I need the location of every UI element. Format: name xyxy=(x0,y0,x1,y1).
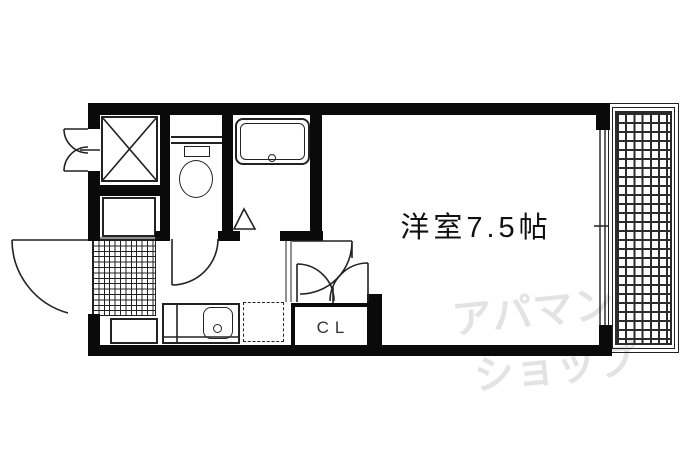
floorplan-canvas: アパマン ショップ CL xyxy=(0,0,690,460)
toilet-door xyxy=(172,239,218,285)
bath-folding-door xyxy=(234,209,255,229)
hall-threshold-lines xyxy=(286,240,291,302)
main-room-label: 洋室7.5帖 xyxy=(386,204,566,246)
kitchen-counter-lines xyxy=(162,303,240,344)
room-door xyxy=(292,241,352,294)
balcony-window xyxy=(594,130,608,325)
entrance-door xyxy=(12,240,88,313)
service-hatch-doors xyxy=(64,129,100,171)
linework-layer xyxy=(0,0,690,460)
x-mark-icon xyxy=(102,117,157,181)
